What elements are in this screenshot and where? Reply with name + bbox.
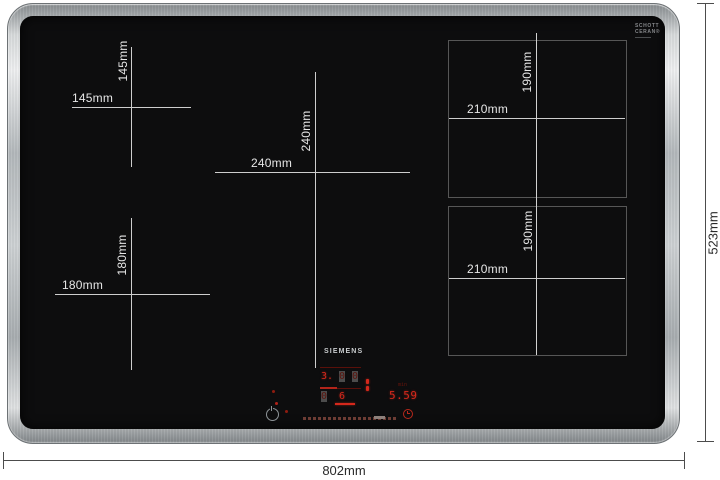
- width-dimension-tick-left: [3, 452, 4, 469]
- power-level-display-zone-c: 0: [352, 371, 358, 382]
- indicator-dot-icon: [272, 390, 275, 393]
- diagram-canvas: SCHOTT CERAN® 145mm 145mm 240mm 240mm 18…: [0, 0, 720, 480]
- width-dimension-tick-right: [684, 452, 685, 469]
- power-level-display-zone-b: 0: [339, 371, 345, 382]
- flex-zone-top-outline: [448, 40, 627, 198]
- timer-unit-label: min: [398, 383, 407, 388]
- indicator-dot-icon: [275, 402, 278, 405]
- schott-logo-line2: CERAN®: [635, 29, 660, 35]
- zone-180-height-label: 180mm: [115, 234, 129, 275]
- schott-ceran-logo: SCHOTT CERAN®: [635, 23, 660, 38]
- power-level-display-selected: 6: [339, 391, 345, 402]
- zone-a-select-underline: [320, 387, 337, 389]
- zone-145-height-label: 145mm: [116, 40, 130, 81]
- indicator-dot-icon: [285, 410, 288, 413]
- flex-zone-top-height-label: 190mm: [520, 51, 534, 92]
- power-level-display-zone-d: 0: [321, 391, 327, 402]
- zone-240-horizontal-line: [215, 172, 410, 173]
- power-slider-end-mark: [374, 416, 385, 419]
- flex-zone-bottom-width-label: 210mm: [467, 262, 508, 276]
- zone-145-horizontal-line: [72, 107, 191, 108]
- siemens-logo: SIEMENS: [324, 348, 363, 356]
- flex-zone-top-horizontal-line: [449, 118, 625, 119]
- schott-logo-rule: [635, 37, 651, 38]
- overall-height-label: 523mm: [706, 211, 720, 254]
- zone-180-horizontal-line: [55, 294, 210, 295]
- width-dimension-line: [3, 460, 685, 461]
- selected-zone-underline: [335, 403, 355, 405]
- flex-zone-bottom-outline: [448, 206, 627, 356]
- flex-pair-indicator-dot-bottom: [366, 386, 369, 391]
- timer-clock-icon: [403, 409, 413, 419]
- zone-240-height-label: 240mm: [299, 110, 313, 151]
- flex-zone-bottom-horizontal-line: [449, 278, 625, 279]
- height-dimension-tick-bottom: [697, 441, 714, 442]
- flex-zone-top-width-label: 210mm: [467, 102, 508, 116]
- zone-145-width-label: 145mm: [72, 91, 113, 105]
- power-icon: [266, 408, 279, 421]
- display-frame-line-top: [320, 367, 361, 368]
- power-level-display-zone-a: 3.: [321, 371, 333, 382]
- zone-240-vertical-line: [315, 72, 316, 368]
- overall-width-label: 802mm: [294, 463, 394, 478]
- timer-display: 5.59: [389, 390, 418, 402]
- flex-zones-center-line: [536, 33, 537, 355]
- flex-pair-indicator-dot-top: [366, 379, 369, 384]
- zone-180-width-label: 180mm: [62, 278, 103, 292]
- flex-zone-bottom-height-label: 190mm: [521, 210, 535, 251]
- height-dimension-tick-top: [697, 3, 714, 4]
- zone-240-width-label: 240mm: [251, 156, 292, 170]
